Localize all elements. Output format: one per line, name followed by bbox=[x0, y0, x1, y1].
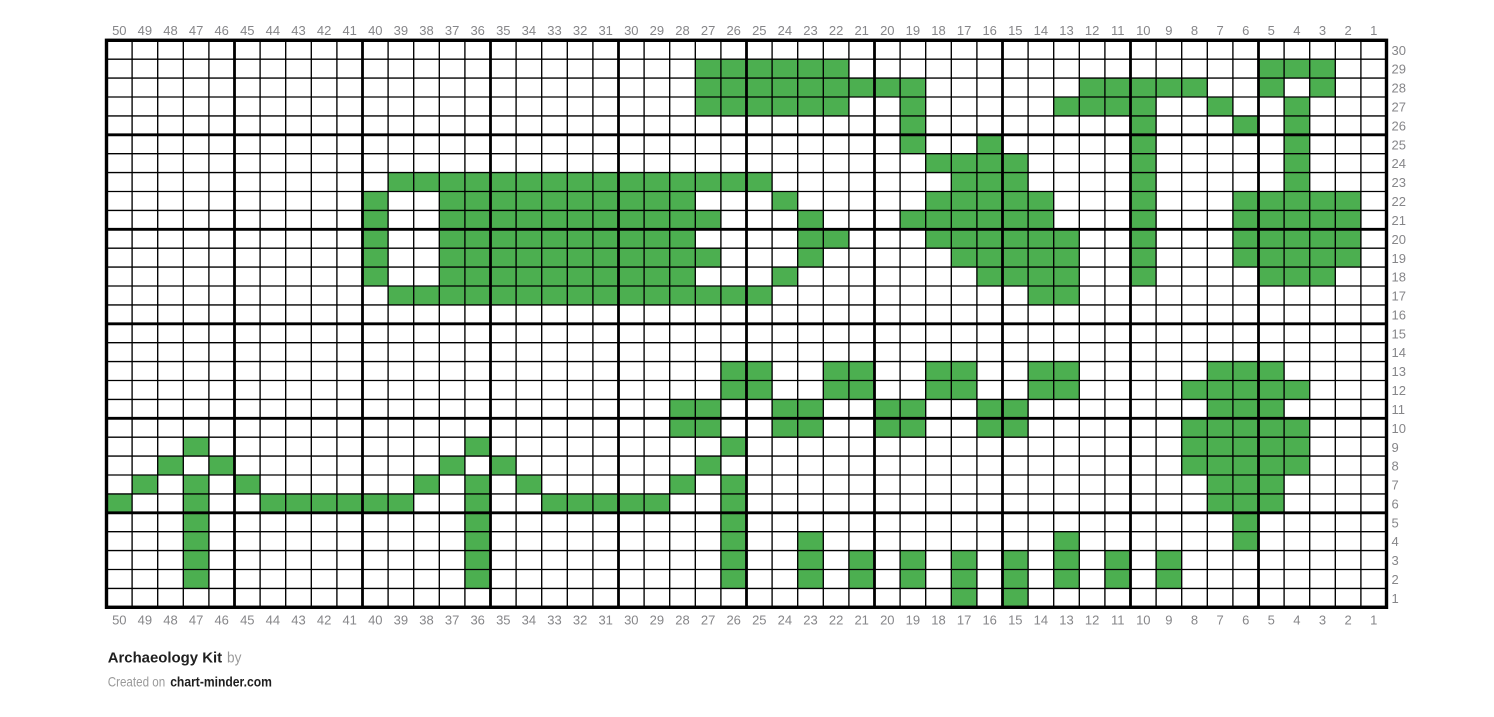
svg-text:14: 14 bbox=[1392, 345, 1406, 360]
svg-text:15: 15 bbox=[1008, 23, 1022, 38]
svg-text:12: 12 bbox=[1392, 383, 1406, 398]
svg-text:22: 22 bbox=[829, 613, 843, 628]
svg-text:22: 22 bbox=[829, 23, 843, 38]
svg-text:29: 29 bbox=[650, 613, 664, 628]
svg-text:32: 32 bbox=[573, 613, 587, 628]
svg-text:34: 34 bbox=[522, 613, 536, 628]
svg-text:34: 34 bbox=[522, 23, 536, 38]
svg-text:25: 25 bbox=[752, 613, 766, 628]
svg-text:45: 45 bbox=[240, 613, 254, 628]
svg-text:40: 40 bbox=[368, 613, 382, 628]
svg-text:29: 29 bbox=[650, 23, 664, 38]
svg-text:7: 7 bbox=[1216, 613, 1223, 628]
svg-text:10: 10 bbox=[1392, 421, 1406, 436]
svg-text:7: 7 bbox=[1216, 23, 1223, 38]
svg-text:11: 11 bbox=[1111, 613, 1125, 628]
svg-text:50: 50 bbox=[112, 613, 126, 628]
svg-text:4: 4 bbox=[1392, 534, 1399, 549]
svg-text:33: 33 bbox=[547, 23, 561, 38]
svg-text:30: 30 bbox=[624, 613, 638, 628]
svg-text:12: 12 bbox=[1085, 23, 1099, 38]
svg-text:11: 11 bbox=[1392, 402, 1406, 417]
svg-text:21: 21 bbox=[1392, 213, 1406, 228]
svg-text:8: 8 bbox=[1191, 613, 1198, 628]
svg-text:24: 24 bbox=[778, 23, 792, 38]
svg-text:48: 48 bbox=[163, 613, 177, 628]
svg-text:3: 3 bbox=[1319, 613, 1326, 628]
svg-text:36: 36 bbox=[470, 23, 484, 38]
svg-text:21: 21 bbox=[854, 23, 868, 38]
svg-text:16: 16 bbox=[982, 613, 996, 628]
svg-text:39: 39 bbox=[394, 613, 408, 628]
svg-text:33: 33 bbox=[547, 613, 561, 628]
svg-text:39: 39 bbox=[394, 23, 408, 38]
svg-text:17: 17 bbox=[957, 613, 971, 628]
svg-text:5: 5 bbox=[1268, 613, 1275, 628]
svg-text:38: 38 bbox=[419, 23, 433, 38]
svg-text:32: 32 bbox=[573, 23, 587, 38]
svg-text:chart-minder.com: chart-minder.com bbox=[170, 673, 272, 689]
svg-text:5: 5 bbox=[1268, 23, 1275, 38]
svg-text:6: 6 bbox=[1392, 496, 1399, 511]
svg-text:47: 47 bbox=[189, 23, 203, 38]
svg-text:37: 37 bbox=[445, 613, 459, 628]
svg-text:26: 26 bbox=[726, 23, 740, 38]
svg-text:14: 14 bbox=[1034, 23, 1048, 38]
svg-text:18: 18 bbox=[931, 613, 945, 628]
svg-text:7: 7 bbox=[1392, 478, 1399, 493]
svg-text:16: 16 bbox=[982, 23, 996, 38]
svg-text:Created on: Created on bbox=[108, 673, 166, 689]
svg-text:13: 13 bbox=[1059, 613, 1073, 628]
svg-text:1: 1 bbox=[1392, 591, 1399, 606]
svg-text:13: 13 bbox=[1392, 364, 1406, 379]
svg-text:19: 19 bbox=[1392, 251, 1406, 266]
svg-text:2: 2 bbox=[1392, 572, 1399, 587]
svg-text:43: 43 bbox=[291, 23, 305, 38]
svg-text:1: 1 bbox=[1370, 613, 1377, 628]
svg-text:9: 9 bbox=[1165, 23, 1172, 38]
svg-text:1: 1 bbox=[1370, 23, 1377, 38]
svg-text:31: 31 bbox=[598, 23, 612, 38]
svg-text:Archaeology Kit: Archaeology Kit bbox=[108, 649, 222, 666]
svg-text:27: 27 bbox=[701, 23, 715, 38]
svg-text:30: 30 bbox=[624, 23, 638, 38]
svg-text:4: 4 bbox=[1293, 23, 1300, 38]
svg-text:19: 19 bbox=[906, 23, 920, 38]
svg-text:by: by bbox=[227, 649, 242, 666]
svg-text:3: 3 bbox=[1392, 553, 1399, 568]
svg-text:9: 9 bbox=[1165, 613, 1172, 628]
svg-text:18: 18 bbox=[931, 23, 945, 38]
svg-text:17: 17 bbox=[957, 23, 971, 38]
svg-text:43: 43 bbox=[291, 613, 305, 628]
svg-text:44: 44 bbox=[266, 613, 280, 628]
svg-text:10: 10 bbox=[1136, 613, 1150, 628]
svg-text:11: 11 bbox=[1111, 23, 1125, 38]
svg-text:49: 49 bbox=[138, 23, 152, 38]
svg-text:24: 24 bbox=[1392, 156, 1406, 171]
svg-text:6: 6 bbox=[1242, 613, 1249, 628]
svg-text:2: 2 bbox=[1344, 23, 1351, 38]
svg-text:26: 26 bbox=[726, 613, 740, 628]
svg-text:5: 5 bbox=[1392, 515, 1399, 530]
svg-text:36: 36 bbox=[470, 613, 484, 628]
svg-text:20: 20 bbox=[1392, 232, 1406, 247]
svg-text:3: 3 bbox=[1319, 23, 1326, 38]
svg-text:8: 8 bbox=[1191, 23, 1198, 38]
svg-text:31: 31 bbox=[598, 613, 612, 628]
svg-text:42: 42 bbox=[317, 613, 331, 628]
svg-text:40: 40 bbox=[368, 23, 382, 38]
svg-text:28: 28 bbox=[675, 23, 689, 38]
svg-text:42: 42 bbox=[317, 23, 331, 38]
svg-text:46: 46 bbox=[214, 23, 228, 38]
svg-text:2: 2 bbox=[1344, 613, 1351, 628]
svg-text:35: 35 bbox=[496, 613, 510, 628]
svg-text:24: 24 bbox=[778, 613, 792, 628]
svg-text:18: 18 bbox=[1392, 270, 1406, 285]
svg-text:15: 15 bbox=[1008, 613, 1022, 628]
svg-text:13: 13 bbox=[1059, 23, 1073, 38]
svg-text:9: 9 bbox=[1392, 440, 1399, 455]
svg-text:20: 20 bbox=[880, 613, 894, 628]
svg-text:44: 44 bbox=[266, 23, 280, 38]
svg-text:49: 49 bbox=[138, 613, 152, 628]
svg-text:23: 23 bbox=[1392, 175, 1406, 190]
svg-text:14: 14 bbox=[1034, 613, 1048, 628]
svg-text:25: 25 bbox=[1392, 137, 1406, 152]
svg-text:27: 27 bbox=[1392, 100, 1406, 115]
svg-text:19: 19 bbox=[906, 613, 920, 628]
svg-text:48: 48 bbox=[163, 23, 177, 38]
svg-text:16: 16 bbox=[1392, 307, 1406, 322]
svg-text:35: 35 bbox=[496, 23, 510, 38]
svg-text:38: 38 bbox=[419, 613, 433, 628]
svg-text:41: 41 bbox=[342, 23, 356, 38]
svg-text:29: 29 bbox=[1392, 62, 1406, 77]
svg-text:28: 28 bbox=[675, 613, 689, 628]
svg-text:10: 10 bbox=[1136, 23, 1150, 38]
svg-text:47: 47 bbox=[189, 613, 203, 628]
svg-text:28: 28 bbox=[1392, 81, 1406, 96]
svg-text:21: 21 bbox=[854, 613, 868, 628]
svg-text:26: 26 bbox=[1392, 118, 1406, 133]
svg-text:15: 15 bbox=[1392, 326, 1406, 341]
svg-text:27: 27 bbox=[701, 613, 715, 628]
svg-text:41: 41 bbox=[342, 613, 356, 628]
svg-text:25: 25 bbox=[752, 23, 766, 38]
svg-text:12: 12 bbox=[1085, 613, 1099, 628]
svg-text:23: 23 bbox=[803, 23, 817, 38]
svg-text:30: 30 bbox=[1392, 43, 1406, 58]
svg-text:46: 46 bbox=[214, 613, 228, 628]
svg-text:17: 17 bbox=[1392, 289, 1406, 304]
svg-text:6: 6 bbox=[1242, 23, 1249, 38]
svg-text:20: 20 bbox=[880, 23, 894, 38]
svg-text:45: 45 bbox=[240, 23, 254, 38]
svg-text:4: 4 bbox=[1293, 613, 1300, 628]
svg-text:8: 8 bbox=[1392, 459, 1399, 474]
svg-text:23: 23 bbox=[803, 613, 817, 628]
svg-text:22: 22 bbox=[1392, 194, 1406, 209]
svg-text:37: 37 bbox=[445, 23, 459, 38]
svg-text:50: 50 bbox=[112, 23, 126, 38]
